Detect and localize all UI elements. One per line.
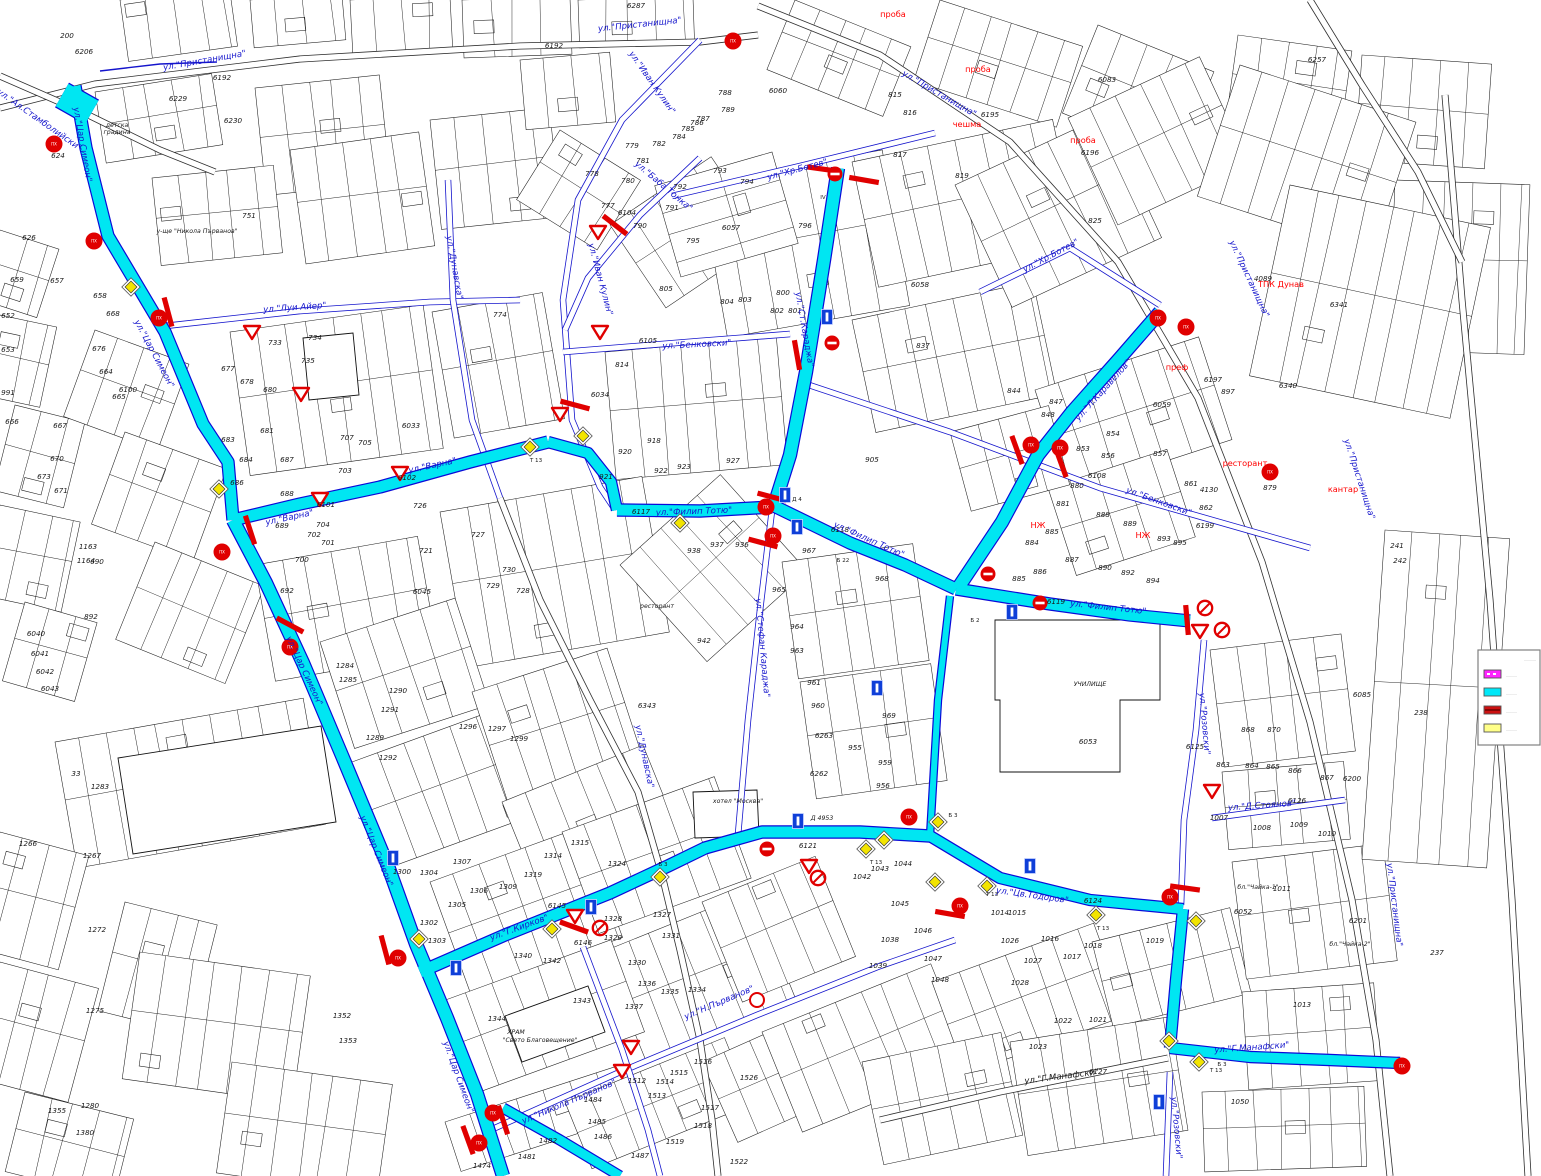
parcel-number: 6192 [545,41,564,50]
sign-code-label: Т 13 [1209,1068,1223,1074]
swatch-dash [1487,673,1490,675]
parcel-number: 780 [621,176,635,185]
parcel-number: 1009 [1290,820,1309,829]
red-annotation-label: ТПК Дунав [1257,279,1304,289]
parcel-number: 726 [413,501,427,510]
parcel-number: 968 [875,574,889,583]
parcel-number: 751 [242,211,256,220]
marker-label: ПХ [1167,895,1173,900]
marker-label: ПХ [1183,325,1189,330]
parcel-number: 1272 [88,925,107,934]
parcel-number: 991 [1,388,15,397]
info-sign-icon[interactable] [792,520,803,535]
parcel-number: 1352 [333,1011,352,1020]
parcel-number: 1016 [1041,934,1060,943]
info-sign-icon[interactable] [1154,1095,1165,1110]
legend-label: ........... [1506,692,1517,696]
parcel-number: 1331 [662,931,680,940]
no-entry-sign-icon[interactable] [1033,596,1048,611]
parcel-number: 803 [738,295,752,304]
street-name-label: ул."Пристанищна" [1341,437,1377,521]
parcel-number: 6206 [75,47,94,56]
marker-label: ПХ [219,550,225,555]
parcel-number: 867 [1320,773,1334,782]
parcel-number: 1023 [1029,1042,1048,1051]
parcel-number: 1486 [594,1132,613,1141]
parcel-number: 6196 [1081,148,1100,157]
parcel-number: 6121 [799,841,817,850]
parcel-number: 969 [882,711,896,720]
parcel-number: 6146 [574,938,593,947]
priority-road-sign-icon[interactable] [926,873,944,891]
parcel-number: 6041 [31,649,49,658]
parcel-number: 1482 [539,1136,558,1145]
parcel-block [91,432,226,561]
parcel-number: 1019 [1146,936,1165,945]
hydrant-marker-icon[interactable]: ПХ [1052,440,1069,457]
road-marking-bar[interactable] [792,340,802,370]
parcel-number: 6083 [1098,75,1117,84]
hydrant-marker-icon[interactable]: ПХ [1023,437,1040,454]
parcel-number: 967 [802,546,816,555]
info-sign-icon[interactable] [451,961,462,976]
parcel-number: 1017 [1063,952,1082,961]
info-sign-icon[interactable] [793,814,804,829]
parcel-number: 1340 [514,951,533,960]
parcel-outline [605,337,788,480]
legend-label: ........... [1506,728,1517,732]
parcel-number: 1296 [459,722,478,731]
hydrant-marker-icon[interactable]: ПХ [214,544,231,561]
parcel-number: 680 [263,385,277,394]
parcel-outline [1232,843,1397,979]
parcel-number: 936 [735,540,749,549]
parcel-number: 1324 [608,859,627,868]
parcel-number: 1309 [499,882,518,891]
parcel-number: 6199 [1196,521,1215,530]
parcel-number: 653 [1,345,15,354]
parcel-number: 241 [1390,541,1404,550]
parcel-number: 814 [615,360,629,369]
marker-label: ПХ [395,956,401,961]
parcel-block [290,132,435,264]
parcel-number: 6263 [815,731,834,740]
parcel-number: 1283 [91,782,110,791]
marker-label: ПХ [490,1111,496,1116]
yield-sign-icon[interactable] [1204,785,1220,798]
hydrant-marker-icon[interactable]: ПХ [1394,1058,1411,1075]
yield-sign-icon[interactable] [592,326,608,339]
parcel-number: 687 [280,455,294,464]
parcel-number: 1300 [393,867,412,876]
parcel-number: 624 [51,151,65,160]
marker-label: ПХ [91,239,97,244]
hydrant-marker-icon[interactable]: ПХ [86,233,103,250]
building-outline [995,620,1160,772]
parcel-number: 1047 [924,954,943,963]
parcel-number: 6100 [119,385,138,394]
parcel-number: 684 [239,455,253,464]
prohibition-ring-icon[interactable] [750,993,764,1007]
poi-label: бл."Чайка-1" [1237,883,1278,891]
parcel-number: 6262 [810,769,829,778]
sign-face [1204,785,1220,798]
parcel-number: 678 [240,377,254,386]
red-annotation-label: кантар [1328,484,1358,494]
yield-sign-icon[interactable] [1192,625,1208,638]
parcel-number: 1039 [869,961,888,970]
no-entry-sign-icon[interactable] [760,842,775,857]
parcel-number: 894 [1146,576,1160,585]
parcel-block [5,1092,134,1176]
hydrant-marker-icon[interactable]: ПХ [952,898,969,915]
parcel-number: 707 [340,433,354,442]
parcel-outline [0,832,89,970]
parcel-number: 729 [486,581,500,590]
parcel-number: 1315 [571,838,590,847]
parcel-number: 1522 [730,1157,749,1166]
hydrant-marker-icon[interactable]: ПХ [725,33,742,50]
parcel-number: 920 [618,447,632,456]
parcel-number: 921 [599,472,613,481]
parcel-number: 1481 [518,1152,536,1161]
hydrant-marker-icon[interactable]: ПХ [758,499,775,516]
marker-label: ПХ [156,316,162,321]
parcel-number: 702 [307,530,321,539]
hydrant-marker-icon[interactable]: ПХ [1162,889,1179,906]
parcel-number: 1013 [1293,1000,1312,1009]
parcel-number: 728 [516,586,530,595]
sign-code-label: Б 2 [970,618,979,624]
parcel-number: 6145 [548,901,567,910]
parcel-number: 6343 [638,701,657,710]
parcel-number: 671 [54,486,68,495]
parcel-number: 692 [280,586,294,595]
parcel-number: 1485 [588,1117,607,1126]
parcel-number: 6101 [317,500,335,509]
parcel-number: 866 [1288,766,1302,775]
parcel-number: 6287 [627,1,646,10]
parcel-number: 6104 [618,208,637,217]
red-annotation-label: НЖ [1031,520,1046,530]
no-stopping-sign-icon[interactable] [1215,623,1229,637]
parcel-number: 6057 [722,223,741,232]
parcel-number: 816 [903,108,917,117]
street-name-label: ул."Дунавска" [443,234,464,300]
parcel-number: 6119 [1047,597,1066,606]
parcel-number: 1289 [366,733,385,742]
city-traffic-map[interactable]: ПХПХПХПХПХПХПХПХПХПХПХПХПХПХПХПХПХПХПХПХ… [0,0,1541,1176]
map-canvas[interactable]: ПХПХПХПХПХПХПХПХПХПХПХПХПХПХПХПХПХПХПХПХ… [0,0,1541,1176]
parcel-number: 848 [1041,410,1055,419]
parcel-number: 664 [99,367,113,376]
parcel-number: 853 [1076,444,1090,453]
sign-glyph [797,817,800,826]
parcel-number: 955 [848,743,862,752]
parcel-block [0,505,80,612]
parcel-number: 881 [1056,499,1070,508]
parcel-number: 683 [221,435,235,444]
parcel-number: 730 [502,565,516,574]
parcel-number: 6040 [27,629,46,638]
info-sign-icon[interactable] [1025,859,1036,874]
parcel-number: 923 [677,462,691,471]
parcel-number: 1044 [894,859,913,868]
sign-code-label: Д 4 [792,497,802,503]
info-sign-icon[interactable] [388,851,399,866]
parcel-number: 837 [916,341,930,350]
parcel-number: 1050 [1231,1097,1250,1106]
no-entry-sign-icon[interactable] [981,567,996,582]
parcel-number: 854 [1106,429,1120,438]
parcel-number: 857 [1153,449,1167,458]
parcel-number: 965 [772,585,786,594]
parcel-number: 1327 [653,910,672,919]
parcel-number: 1028 [1011,978,1030,987]
parcel-number: 1008 [1253,823,1272,832]
no-stopping-sign-icon[interactable] [1198,601,1212,615]
parcel-number: 1330 [628,958,647,967]
parcel-number: 6052 [1234,907,1253,916]
parcel-number: 33 [71,769,81,778]
parcel-number: 1519 [666,1137,685,1146]
parcel-number: 862 [1199,503,1213,512]
poi-label: у-ще "Никола Първанов" [156,228,238,235]
parcel-number: 927 [726,456,740,465]
parcel-number: 864 [1245,761,1259,770]
parcel-number: 905 [865,455,879,464]
parcel-number: 6053 [1079,737,1098,746]
marker-label: ПХ [763,505,769,510]
parcel-number: 1305 [448,900,467,909]
sign-code-label: Б 3 [658,862,668,868]
no-entry-sign-icon[interactable] [828,167,843,182]
parcel-number: 938 [687,546,701,555]
parcel-number: 1026 [1001,936,1020,945]
parcel-number: 865 [1266,762,1280,771]
parcel-number: 1314 [544,851,563,860]
parcel-number: 657 [50,276,64,285]
sign-bar [983,573,992,576]
parcel-number: 6085 [1353,690,1372,699]
legend-swatch [1484,724,1501,732]
parcel-number: 868 [1241,725,1255,734]
parcel-number: 890 [1098,563,1112,572]
parcel-number: 6192 [213,73,232,82]
parcel-number: 870 [1267,725,1281,734]
parcel-block [605,337,788,480]
parcel-outline [914,0,1083,127]
parcel-number: 817 [893,150,907,159]
parcel-number: 6059 [1153,400,1172,409]
parcel-number: 6340 [1279,381,1298,390]
hydrant-marker-icon[interactable]: ПХ [765,528,782,545]
hydrant-marker-icon[interactable]: ПХ [390,950,407,967]
parcel-number: 774 [493,310,507,319]
parcel-number: 6060 [769,86,788,95]
priority-road-sign-icon[interactable] [857,840,875,858]
parcel-number: 1014 [991,908,1010,917]
map-legend: ........................................… [1478,650,1540,745]
hydrant-marker-icon[interactable]: ПХ [151,310,168,327]
parcel-number: 1342 [543,956,562,965]
parcel-number: 895 [1173,538,1187,547]
poi-label: ХРАМ [506,1029,525,1036]
parcel-number: 1042 [853,872,872,881]
info-sign-icon[interactable] [586,900,597,915]
poi-label: Д 4953 [810,815,834,822]
parcel-number: 701 [321,538,335,547]
poi-label: градина [103,129,130,136]
sign-bar [830,173,839,176]
poi-label: УЧИЛИЩЕ [1074,681,1107,688]
parcel-number: 668 [106,309,120,318]
parcel-number: 1022 [1054,1016,1073,1025]
parcel-number: 1267 [83,851,102,860]
marker-label: ПХ [1028,443,1034,448]
sign-code-label: Т 13 [529,458,543,464]
parcel-block [120,0,238,61]
parcel-number: 700 [295,555,309,564]
parcel-number: 886 [1033,567,1047,576]
parcel-number: 6034 [591,390,610,399]
parcel-block [1210,634,1355,767]
parcel-number: 666 [5,417,19,426]
marker-label: ПХ [1399,1064,1405,1069]
parcel-number: 819 [955,171,969,180]
parcel-number: 791 [665,203,679,212]
parcel-number: 1518 [694,1121,713,1130]
parcel-number: 1344 [488,1014,507,1023]
parcel-number: 1337 [625,1002,644,1011]
parcel-number: 6105 [639,336,658,345]
parcel-number: 1163 [79,542,98,551]
parcel-number: 795 [686,236,700,245]
parcel-number: 721 [419,546,433,555]
parcel-number: 1328 [604,914,623,923]
sign-bar [827,342,836,345]
parcel-number: 1303 [428,936,447,945]
parcel-number: 6043 [41,684,60,693]
parcel-number: 942 [697,636,711,645]
poi-label: бл."Чайка-2" [1329,940,1370,948]
parcel-number: 1307 [453,857,472,866]
parcel-number: 1353 [339,1036,358,1045]
hydrant-marker-icon[interactable]: ПХ [471,1135,488,1152]
parcel-number: 735 [301,356,315,365]
hydrant-marker-icon[interactable]: ПХ [1178,319,1195,336]
red-annotation-label: ресторант [1223,458,1268,468]
sign-glyph [796,523,799,532]
parcel-number: 670 [50,454,64,463]
parcel-number: 6230 [224,116,243,125]
parcel-number: 1280 [81,1101,100,1110]
hydrant-marker-icon[interactable]: ПХ [901,809,918,826]
parcel-number: 6108 [1088,471,1107,480]
parcel-number: 1343 [573,996,592,1005]
parcel-block [0,230,59,318]
sign-face [592,326,608,339]
parcel-block [914,0,1083,127]
parcel-number: 727 [471,530,485,539]
sign-code-label: Т 13 [869,860,883,866]
street-fill [1181,640,1204,905]
priority-road-sign-icon[interactable] [1087,906,1105,924]
parcel-number: 238 [1414,708,1428,717]
info-sign-icon[interactable] [1007,605,1018,620]
parcel-block [0,962,99,1102]
info-sign-icon[interactable] [872,681,883,696]
parcel-number: 1015 [1008,908,1027,917]
sign-code-label: Б 3 [1217,1062,1227,1068]
road-marking-bar[interactable] [379,935,392,965]
marker-label: ПХ [957,904,963,909]
red-annotation-label: проба [1070,135,1096,145]
parcel-block [152,165,283,265]
parcel-number: 734 [308,333,322,342]
parcel-number: 6042 [36,667,55,676]
parcel-number: 1302 [420,918,439,927]
parcel-number: 964 [790,622,804,631]
sign-glyph [784,491,787,500]
parcel-outline [0,962,99,1102]
parcel-number: 659 [10,275,24,284]
parcel-number: 782 [652,139,666,148]
parcel-number: 825 [1088,216,1102,225]
marker-label: ПХ [906,815,912,820]
parcel-number: 1291 [381,705,399,714]
parcel-number: 788 [718,88,732,97]
no-entry-sign-icon[interactable] [825,336,840,351]
parcel-outline [290,132,435,264]
parcel-number: 681 [260,426,274,435]
parcel-number: 6200 [1343,774,1362,783]
building-outline [303,333,359,400]
parcel-number: 6195 [981,110,1000,119]
parcel-number: 796 [798,221,812,230]
parcel-number: 805 [659,284,673,293]
hydrant-marker-icon[interactable]: ПХ [485,1105,502,1122]
parcel-outline [120,0,238,61]
parcel-outline [216,1062,392,1176]
parcel-number: 677 [221,364,235,373]
parcel-number: 1319 [524,870,543,879]
info-sign-icon[interactable] [822,310,833,325]
parcel-number: 1299 [510,734,529,743]
sign-code-label: IV [820,195,826,201]
parcel-number: 242 [1393,556,1407,565]
poi-label: хотел "Москва" [712,798,763,805]
sign-glyph [826,313,829,322]
parcel-outline [5,1092,134,1176]
parcel-number: 1514 [656,1077,675,1086]
parcel-outline [152,165,283,265]
parcel-number: 956 [876,781,890,790]
poi-label: детска [105,122,129,129]
parcel-number: 1517 [701,1103,720,1112]
marker-label: ПХ [730,39,736,44]
parcel-number: 733 [268,338,282,347]
parcel-number: 200 [60,31,74,40]
parcel-number: 856 [1101,451,1115,460]
parcel-outline [1242,983,1381,1090]
info-sign-icon[interactable] [780,488,791,503]
parcel-number: 1515 [670,1068,689,1077]
parcel-number: 863 [1216,760,1230,769]
hydrant-marker-icon[interactable]: ПХ [1150,310,1167,327]
sign-glyph [1029,862,1032,871]
parcel-number: 1335 [661,987,680,996]
